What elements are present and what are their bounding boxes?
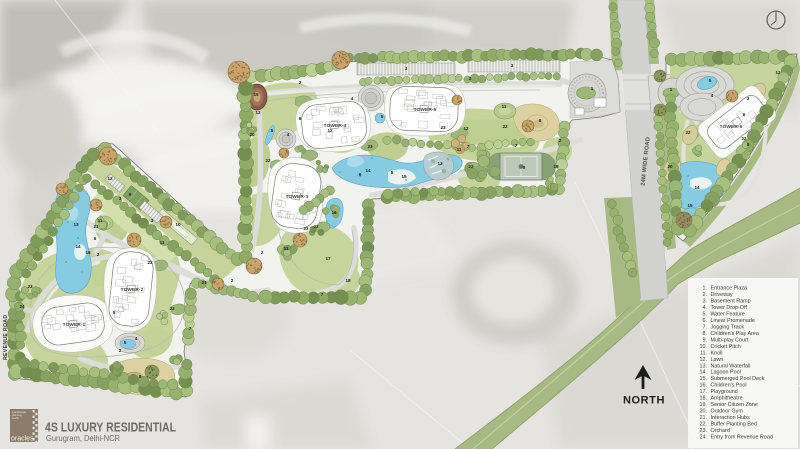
svg-text:oracles: oracles	[11, 436, 34, 443]
svg-text:2: 2	[559, 138, 562, 143]
svg-text:2: 2	[299, 80, 302, 85]
svg-text:15.: 15.	[700, 376, 708, 382]
svg-text:16: 16	[85, 250, 91, 255]
svg-text:TOWER-1: TOWER-1	[63, 322, 86, 328]
svg-text:3: 3	[119, 196, 122, 201]
svg-text:18.: 18.	[700, 396, 708, 402]
svg-text:5: 5	[124, 340, 127, 345]
svg-text:22: 22	[169, 306, 175, 311]
svg-text:4.: 4.	[703, 305, 708, 311]
svg-text:7.: 7.	[703, 324, 708, 330]
svg-text:7: 7	[515, 143, 518, 148]
svg-text:11: 11	[502, 104, 507, 109]
svg-text:4: 4	[135, 336, 138, 341]
svg-text:11: 11	[98, 218, 103, 223]
svg-text:3.: 3.	[703, 299, 708, 305]
svg-text:12.: 12.	[700, 357, 708, 363]
svg-text:22: 22	[502, 124, 508, 129]
svg-text:21: 21	[93, 224, 99, 229]
svg-text:21.: 21.	[700, 415, 708, 421]
svg-text:6.: 6.	[703, 318, 708, 324]
svg-text:Natural Waterfall: Natural Waterfall	[711, 363, 751, 369]
svg-text:13: 13	[437, 161, 443, 166]
svg-text:Jogging Track: Jogging Track	[711, 324, 745, 330]
svg-text:Gurugram, Delhi-NCR: Gurugram, Delhi-NCR	[46, 433, 120, 443]
svg-text:4: 4	[711, 93, 714, 98]
svg-text:Knoll: Knoll	[711, 350, 723, 356]
svg-text:Children's Pool: Children's Pool	[711, 383, 747, 389]
svg-text:20: 20	[249, 132, 255, 137]
svg-text:3: 3	[747, 96, 750, 101]
svg-text:12: 12	[775, 70, 781, 75]
svg-text:19: 19	[253, 92, 259, 97]
svg-text:6: 6	[743, 112, 746, 117]
svg-text:22: 22	[147, 260, 153, 265]
svg-text:Linear Promenade: Linear Promenade	[711, 318, 755, 324]
svg-text:Tower Drop-Off: Tower Drop-Off	[711, 305, 748, 311]
svg-text:1: 1	[670, 87, 673, 92]
svg-text:TOWER-5: TOWER-5	[414, 107, 437, 113]
svg-text:12: 12	[255, 110, 261, 115]
svg-text:Orchard: Orchard	[711, 428, 730, 434]
svg-text:Lagoon Pool: Lagoon Pool	[711, 370, 741, 376]
svg-text:Multi-play Court: Multi-play Court	[711, 337, 749, 343]
svg-text:18: 18	[345, 278, 351, 283]
svg-text:23.: 23.	[700, 428, 708, 434]
svg-text:22: 22	[685, 130, 691, 135]
svg-text:5.: 5.	[703, 311, 708, 317]
svg-text:22: 22	[265, 158, 271, 163]
svg-text:5: 5	[381, 114, 384, 119]
svg-text:6: 6	[299, 116, 302, 121]
svg-text:8: 8	[139, 374, 142, 379]
svg-text:6: 6	[94, 236, 97, 241]
svg-text:5: 5	[391, 170, 394, 175]
svg-text:Driveway: Driveway	[711, 292, 733, 298]
svg-text:Playground: Playground	[711, 389, 738, 395]
svg-text:5: 5	[709, 78, 712, 83]
svg-text:18: 18	[553, 164, 559, 169]
svg-text:22.: 22.	[700, 422, 708, 428]
svg-text:3: 3	[151, 218, 154, 223]
svg-text:Interaction Hubs: Interaction Hubs	[711, 415, 751, 421]
svg-text:9: 9	[523, 165, 526, 170]
svg-text:7: 7	[467, 144, 470, 149]
svg-text:12: 12	[327, 128, 333, 133]
svg-text:1.: 1.	[703, 286, 708, 292]
svg-text:20.: 20.	[700, 409, 708, 415]
svg-text:Senior Citizen Zone: Senior Citizen Zone	[711, 402, 758, 408]
svg-text:Children's Play Area: Children's Play Area	[711, 331, 759, 337]
svg-text:11.: 11.	[700, 350, 707, 356]
svg-text:1: 1	[591, 86, 594, 91]
svg-text:3: 3	[405, 66, 408, 71]
svg-text:10.: 10.	[700, 344, 708, 350]
svg-text:22: 22	[741, 136, 747, 141]
svg-text:REVENUE ROAD: REVENUE ROAD	[3, 315, 9, 360]
svg-text:2: 2	[231, 278, 234, 283]
svg-text:9.: 9.	[703, 337, 708, 343]
svg-text:2: 2	[261, 250, 264, 255]
svg-text:7: 7	[189, 326, 192, 331]
svg-text:22: 22	[313, 224, 319, 229]
svg-text:8: 8	[747, 142, 750, 147]
svg-text:TOWER-6: TOWER-6	[720, 124, 743, 130]
svg-text:17: 17	[325, 256, 331, 261]
svg-text:Lawn: Lawn	[711, 357, 724, 363]
svg-text:24: 24	[19, 304, 25, 309]
svg-text:20: 20	[667, 164, 673, 169]
svg-text:15: 15	[687, 203, 693, 208]
svg-text:4: 4	[351, 96, 354, 101]
svg-text:23: 23	[303, 226, 309, 231]
svg-text:11: 11	[457, 147, 462, 152]
svg-text:21: 21	[201, 280, 207, 285]
svg-text:Entry from Revenue Road: Entry from Revenue Road	[711, 435, 773, 441]
svg-text:23: 23	[367, 144, 373, 149]
svg-text:11: 11	[160, 240, 165, 245]
svg-text:12: 12	[107, 176, 113, 181]
svg-text:24.: 24.	[700, 435, 708, 441]
svg-text:8: 8	[539, 118, 542, 123]
svg-text:23: 23	[27, 284, 33, 289]
svg-text:10: 10	[175, 222, 181, 227]
svg-text:12: 12	[463, 126, 469, 131]
svg-text:4: 4	[287, 132, 290, 137]
svg-text:14.: 14.	[700, 370, 708, 376]
svg-text:11: 11	[284, 246, 289, 251]
svg-text:2: 2	[119, 348, 122, 353]
svg-text:2: 2	[97, 252, 100, 257]
svg-text:2.: 2.	[703, 292, 708, 298]
svg-text:16: 16	[331, 210, 337, 215]
svg-text:15: 15	[401, 174, 407, 179]
svg-text:9: 9	[129, 192, 132, 197]
svg-text:Submerged Pool Deck: Submerged Pool Deck	[711, 376, 765, 382]
svg-text:Water Feature: Water Feature	[711, 311, 745, 317]
svg-text:Amphitheatre: Amphitheatre	[711, 396, 743, 402]
svg-text:23: 23	[468, 164, 474, 169]
svg-text:13.: 13.	[700, 363, 708, 369]
svg-text:2: 2	[469, 76, 472, 81]
svg-text:Basement Ramp: Basement Ramp	[711, 299, 751, 305]
svg-text:3: 3	[511, 63, 514, 68]
svg-text:5: 5	[113, 310, 116, 315]
svg-text:16.: 16.	[700, 383, 708, 389]
svg-text:14: 14	[365, 168, 371, 173]
svg-text:NORTH: NORTH	[623, 395, 665, 407]
svg-text:TOWER-2: TOWER-2	[121, 287, 144, 293]
svg-text:Outdoor Gym: Outdoor Gym	[711, 409, 744, 415]
svg-text:19.: 19.	[700, 402, 708, 408]
svg-text:TOWER-3: TOWER-3	[286, 194, 309, 200]
svg-text:Buffer Planting Bed: Buffer Planting Bed	[711, 422, 757, 428]
svg-text:6: 6	[359, 172, 362, 177]
svg-text:7: 7	[321, 292, 324, 297]
svg-text:23: 23	[440, 125, 446, 130]
svg-text:Cricket Pitch: Cricket Pitch	[711, 344, 741, 350]
svg-text:8.: 8.	[703, 331, 708, 337]
svg-text:5: 5	[271, 128, 274, 133]
svg-text:14: 14	[694, 185, 700, 190]
svg-text:studio: studio	[12, 416, 19, 420]
svg-text:Entrance Plaza: Entrance Plaza	[711, 286, 748, 292]
svg-text:17.: 17.	[700, 389, 708, 395]
svg-text:14: 14	[75, 244, 81, 249]
svg-text:13: 13	[73, 222, 79, 227]
